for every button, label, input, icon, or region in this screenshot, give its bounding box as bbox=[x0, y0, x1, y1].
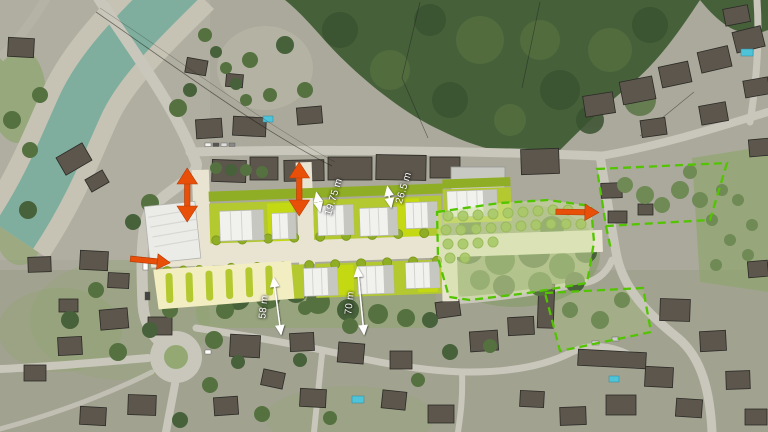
masterplan-aerial-map: 19.75 m 26.5 m 58 m 70 m bbox=[0, 0, 768, 432]
roundabout-island bbox=[164, 345, 188, 369]
aerial-photo-canvas bbox=[0, 0, 768, 432]
